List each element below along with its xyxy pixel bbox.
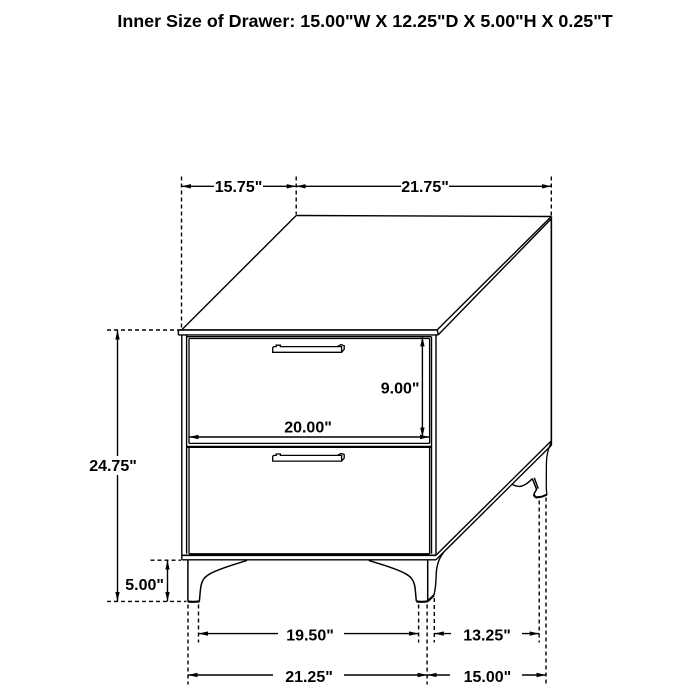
svg-text:5.00": 5.00" bbox=[125, 577, 164, 594]
svg-text:21.75": 21.75" bbox=[401, 179, 449, 196]
svg-text:9.00": 9.00" bbox=[381, 380, 420, 397]
svg-text:15.75": 15.75" bbox=[215, 179, 263, 196]
svg-text:13.25": 13.25" bbox=[463, 628, 511, 645]
svg-text:Inner Size of Drawer: 15.00"W: Inner Size of Drawer: 15.00"W X 12.25"D … bbox=[117, 11, 612, 31]
svg-text:24.75": 24.75" bbox=[89, 458, 137, 475]
svg-text:15.00": 15.00" bbox=[464, 669, 512, 686]
svg-text:20.00": 20.00" bbox=[284, 420, 332, 437]
svg-text:21.25": 21.25" bbox=[285, 669, 333, 686]
svg-text:19.50": 19.50" bbox=[286, 628, 334, 645]
